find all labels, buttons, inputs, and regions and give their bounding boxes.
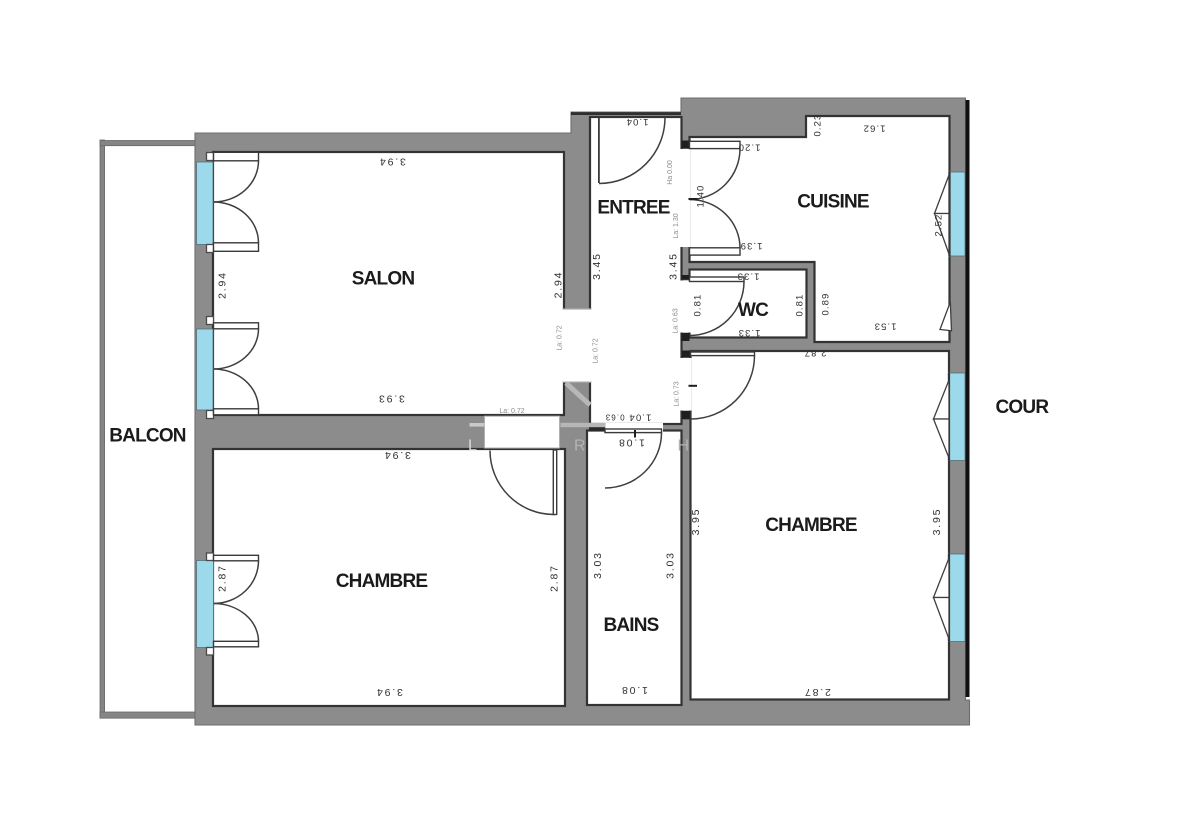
svg-text:ENTREE: ENTREE [597, 198, 669, 219]
svg-text:La: 0.72: La: 0.72 [557, 325, 564, 350]
svg-text:1.62: 1.62 [863, 123, 886, 134]
svg-text:3.45: 3.45 [591, 252, 603, 280]
svg-text:3.93: 3.93 [377, 393, 405, 405]
svg-text:1.20: 1.20 [738, 142, 761, 153]
svg-text:0.81: 0.81 [693, 294, 704, 317]
svg-text:1.53: 1.53 [874, 321, 897, 332]
svg-text:3.95: 3.95 [690, 508, 702, 536]
svg-text:3.03: 3.03 [592, 551, 604, 579]
svg-text:2.94: 2.94 [217, 271, 229, 299]
svg-text:2.87: 2.87 [803, 686, 831, 698]
svg-text:0.81: 0.81 [795, 294, 806, 317]
svg-text:0.89: 0.89 [821, 293, 832, 316]
svg-text:L: L [468, 438, 477, 455]
svg-text:2.87: 2.87 [217, 564, 229, 592]
svg-text:La: 0.73: La: 0.73 [674, 381, 681, 406]
svg-text:SALON: SALON [352, 269, 415, 290]
svg-text:1.33: 1.33 [737, 271, 760, 282]
svg-text:3.95: 3.95 [931, 508, 943, 536]
svg-text:CHAMBRE: CHAMBRE [336, 571, 428, 592]
svg-text:3.94: 3.94 [383, 449, 411, 461]
svg-text:COUR: COUR [996, 397, 1050, 418]
svg-text:La: 1.30: La: 1.30 [673, 213, 680, 238]
svg-text:3.03: 3.03 [665, 551, 677, 579]
svg-text:R: R [574, 438, 586, 455]
svg-text:2.87: 2.87 [549, 564, 561, 592]
svg-text:BALCON: BALCON [109, 426, 186, 447]
svg-text:1.40: 1.40 [696, 185, 707, 208]
svg-text:H: H [678, 438, 690, 455]
svg-text:0.23: 0.23 [813, 114, 824, 137]
svg-text:1.04: 1.04 [626, 116, 649, 127]
svg-text:2.52: 2.52 [934, 214, 945, 237]
svg-text:CUISINE: CUISINE [797, 192, 869, 213]
svg-text:3.94: 3.94 [378, 156, 406, 168]
svg-text:1.39: 1.39 [740, 240, 763, 251]
svg-text:Ha 0.00: Ha 0.00 [667, 160, 674, 185]
svg-text:1.08: 1.08 [617, 437, 645, 449]
svg-text:WC: WC [738, 300, 769, 321]
svg-text:1.08: 1.08 [620, 684, 648, 696]
svg-text:La: 0.63: La: 0.63 [673, 308, 680, 333]
svg-text:CHAMBRE: CHAMBRE [765, 515, 857, 536]
svg-text:La: 0.72: La: 0.72 [593, 338, 600, 363]
svg-text:2.94: 2.94 [553, 271, 565, 299]
svg-text:La: 0.72: La: 0.72 [499, 408, 524, 415]
svg-text:1.33: 1.33 [738, 327, 761, 338]
svg-text:BAINS: BAINS [603, 615, 658, 636]
svg-text:3.94: 3.94 [375, 686, 403, 698]
svg-text:3.45: 3.45 [668, 252, 680, 280]
svg-text:1.04 0.63: 1.04 0.63 [605, 412, 652, 423]
svg-text:2.87: 2.87 [804, 347, 827, 358]
